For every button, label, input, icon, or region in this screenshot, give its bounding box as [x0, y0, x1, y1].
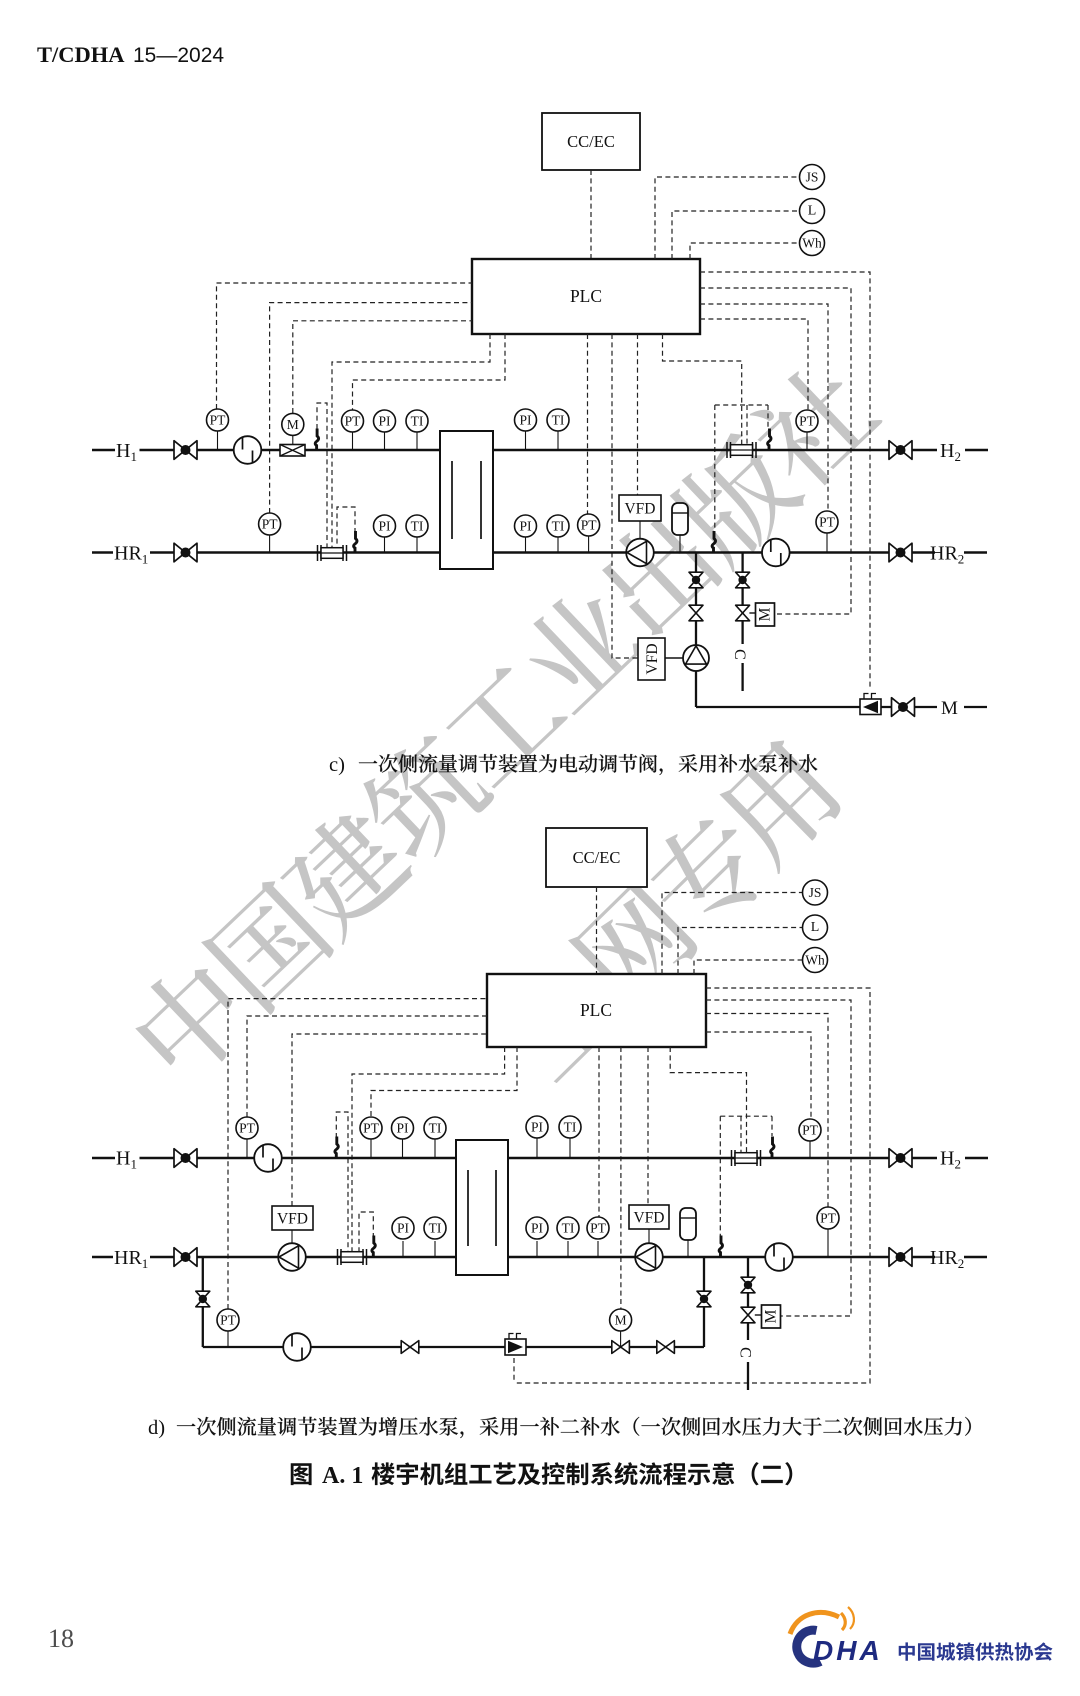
- svg-text:PT: PT: [345, 414, 362, 429]
- svg-text:PI: PI: [519, 519, 532, 534]
- svg-text:PT: PT: [799, 414, 816, 429]
- svg-text:PI: PI: [531, 1221, 544, 1236]
- svg-text:TI: TI: [552, 413, 565, 428]
- svg-text:M: M: [763, 1309, 780, 1323]
- svg-text:PT: PT: [220, 1313, 237, 1328]
- svg-text:PT: PT: [262, 517, 279, 532]
- svg-text:L: L: [811, 920, 820, 935]
- svg-text:TI: TI: [552, 519, 565, 534]
- svg-text:d): d): [148, 1417, 165, 1439]
- svg-text:M: M: [941, 698, 958, 719]
- svg-text:TI: TI: [562, 1221, 575, 1236]
- svg-text:18: 18: [48, 1624, 74, 1653]
- svg-text:PT: PT: [802, 1123, 819, 1138]
- svg-text:C: C: [731, 649, 748, 660]
- svg-text:PT: PT: [820, 1211, 837, 1226]
- svg-text:CC/EC: CC/EC: [567, 132, 615, 151]
- svg-text:VFD: VFD: [633, 1210, 664, 1227]
- svg-text:M: M: [615, 1313, 627, 1328]
- svg-text:TI: TI: [411, 519, 424, 534]
- svg-text:Wh: Wh: [802, 236, 822, 251]
- svg-text:PLC: PLC: [580, 1000, 612, 1020]
- svg-text:TI: TI: [429, 1221, 442, 1236]
- svg-text:PT: PT: [590, 1221, 607, 1236]
- svg-text:PT: PT: [239, 1121, 256, 1136]
- svg-text:VFD: VFD: [624, 501, 655, 518]
- svg-text:A. 1: A. 1: [322, 1463, 363, 1489]
- svg-text:PI: PI: [378, 414, 391, 429]
- svg-text:Wh: Wh: [805, 953, 825, 968]
- svg-text:PI: PI: [519, 413, 532, 428]
- svg-text:TI: TI: [429, 1121, 442, 1136]
- svg-text:PI: PI: [531, 1120, 544, 1135]
- svg-text:M: M: [287, 417, 299, 432]
- svg-text:L: L: [808, 204, 817, 219]
- svg-text:JS: JS: [809, 885, 822, 900]
- svg-text:VFD: VFD: [277, 1211, 308, 1228]
- svg-text:DHA: DHA: [813, 1635, 883, 1666]
- svg-text:PT: PT: [819, 515, 836, 530]
- svg-text:15—2024: 15—2024: [133, 44, 224, 67]
- svg-text:PI: PI: [397, 1221, 410, 1236]
- svg-text:CC/EC: CC/EC: [573, 848, 621, 867]
- svg-text:T/CDHA: T/CDHA: [37, 42, 125, 67]
- svg-text:PLC: PLC: [570, 286, 602, 306]
- svg-text:PT: PT: [210, 413, 227, 428]
- svg-text:TI: TI: [564, 1120, 577, 1135]
- svg-text:PT: PT: [363, 1121, 380, 1136]
- svg-text:PI: PI: [396, 1121, 409, 1136]
- svg-text:PI: PI: [378, 519, 391, 534]
- svg-text:TI: TI: [411, 414, 424, 429]
- svg-text:PT: PT: [581, 518, 598, 533]
- svg-text:VFD: VFD: [644, 643, 661, 674]
- svg-text:JS: JS: [806, 170, 819, 185]
- svg-text:c): c): [329, 754, 345, 776]
- svg-text:C: C: [737, 1347, 754, 1358]
- svg-text:M: M: [757, 607, 774, 621]
